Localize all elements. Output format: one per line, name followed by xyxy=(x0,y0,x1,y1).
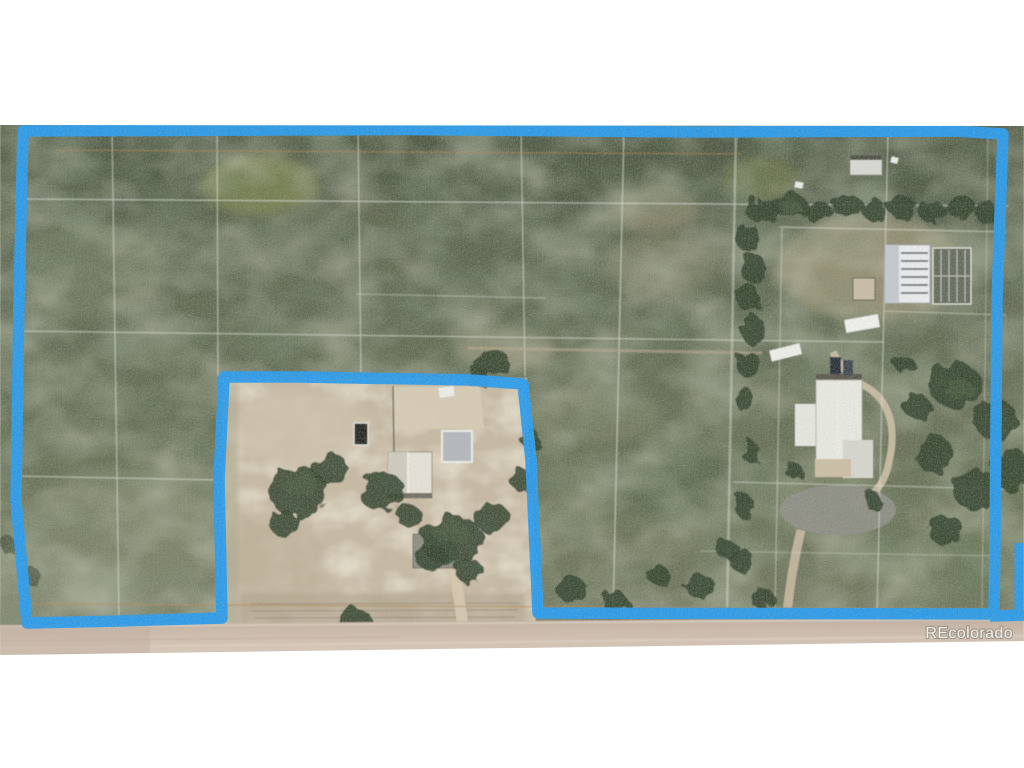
recolorado-watermark: REcolorado xyxy=(925,625,1013,642)
aerial-photo: REcolorado xyxy=(0,0,1024,768)
listing-photo-page: REcolorado xyxy=(0,0,1024,768)
photo-grain xyxy=(0,124,1024,656)
photo-content: REcolorado xyxy=(0,124,1024,656)
